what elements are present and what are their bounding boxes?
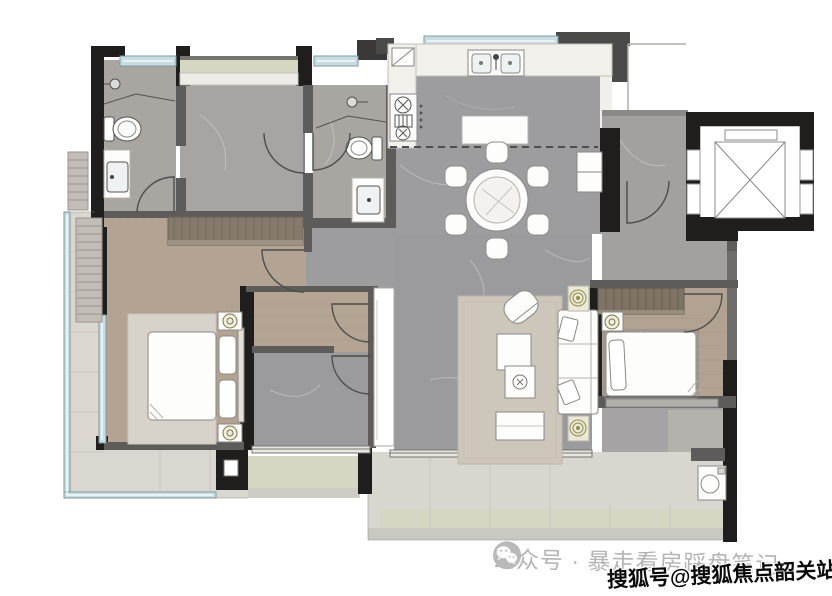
planter-strip-west (248, 456, 360, 488)
vanity-sink-icon-2 (352, 178, 384, 222)
column-window (224, 460, 238, 476)
middle-room (374, 288, 394, 446)
washing-machine-icon (698, 466, 726, 500)
wechat-icon (492, 540, 523, 571)
hallway-floor (303, 226, 395, 288)
nightstand-lamp-icon (218, 312, 242, 330)
wardrobe (168, 217, 303, 245)
plant-pot-icon (568, 286, 589, 311)
kitchen-island (462, 116, 528, 144)
living-room (458, 286, 598, 464)
nightstand-lamp-icon-3 (602, 312, 623, 331)
wardrobe-2 (598, 288, 684, 314)
floorplan-drawing (0, 0, 832, 596)
laundry-nook (698, 466, 726, 500)
sofa (557, 310, 598, 414)
vanity-sink-icon (104, 150, 130, 198)
elevator-door-right (800, 150, 813, 180)
nightstand-lamp-icon-2 (218, 424, 242, 442)
plant-pot-icon-2 (568, 416, 589, 441)
stairwell-outline (628, 44, 686, 110)
elevator-x-symbol (715, 142, 785, 218)
middle-room-gray-floor (252, 352, 374, 448)
double-kitchen-sink-icon (468, 50, 524, 76)
toilet-icon-2 (346, 137, 382, 160)
middle-room-wood-floor (252, 292, 374, 352)
bay-window (180, 56, 298, 85)
single-bed (604, 330, 700, 398)
planter-strip-south (380, 510, 724, 528)
elevator-door-left (687, 150, 700, 180)
coffee-table (497, 334, 531, 370)
toilet-icon (104, 117, 141, 141)
floorplan-screenshot: 公众号 · 暴走看房踩盘笔记 搜狐号@搜狐焦点韶关站 (0, 0, 832, 596)
elevator (686, 112, 814, 231)
dressing-room-floor (180, 85, 303, 213)
